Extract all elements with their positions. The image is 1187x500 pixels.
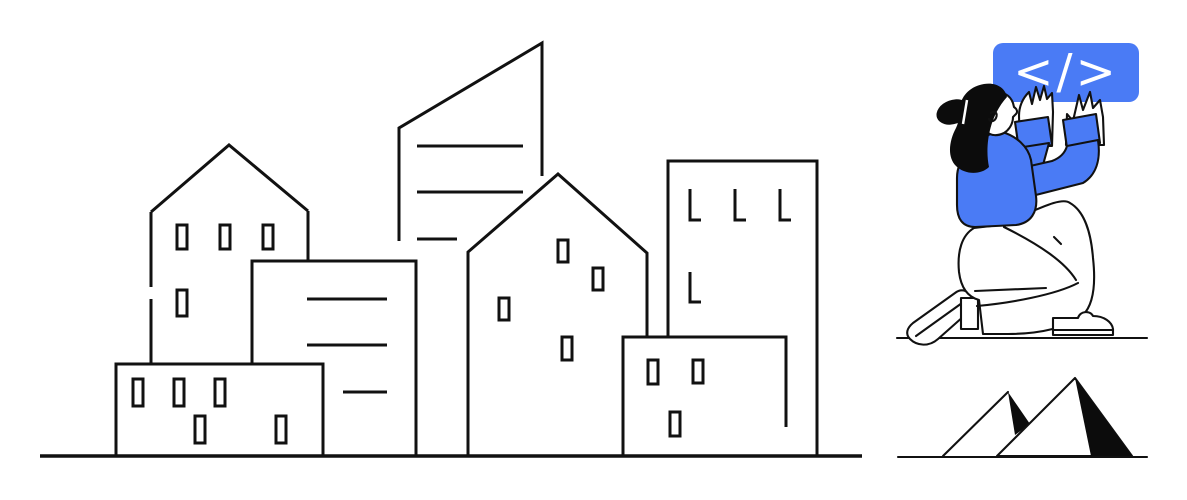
- window: [177, 225, 187, 249]
- l-window: [690, 272, 701, 302]
- building-middle-house: [468, 174, 647, 455]
- l-window: [690, 189, 701, 220]
- building-tall-right: [668, 161, 817, 455]
- window: [174, 379, 184, 406]
- small-pyramid-left-slope: [943, 392, 1008, 456]
- ankle-band: [961, 298, 978, 329]
- window: [593, 268, 603, 290]
- illustration-canvas: </>: [0, 0, 1187, 500]
- building-lower-left: [116, 364, 323, 455]
- code-sign: </>: [993, 43, 1139, 102]
- house-roof: [151, 145, 308, 212]
- l-window: [780, 189, 791, 220]
- window: [195, 416, 205, 443]
- window: [133, 379, 143, 406]
- window: [693, 360, 703, 383]
- city-developer-illustration: </>: [0, 0, 1187, 500]
- window: [562, 337, 572, 360]
- window: [648, 360, 658, 384]
- window: [177, 290, 187, 316]
- window: [670, 412, 680, 436]
- developer-figure: </>: [897, 43, 1147, 345]
- building-lower-right: [623, 337, 786, 455]
- pyramids: [898, 378, 1147, 457]
- city-skyline: [40, 43, 862, 456]
- building-outline: [468, 174, 647, 455]
- building-slant-tower: [399, 43, 542, 241]
- window: [276, 416, 286, 443]
- window: [263, 225, 273, 249]
- building-outline: [623, 337, 786, 455]
- l-window: [735, 189, 746, 220]
- window: [220, 225, 230, 249]
- building-outline: [399, 43, 542, 241]
- window: [499, 298, 509, 320]
- window: [215, 379, 225, 406]
- building-left-house: [151, 145, 308, 364]
- window: [558, 240, 568, 262]
